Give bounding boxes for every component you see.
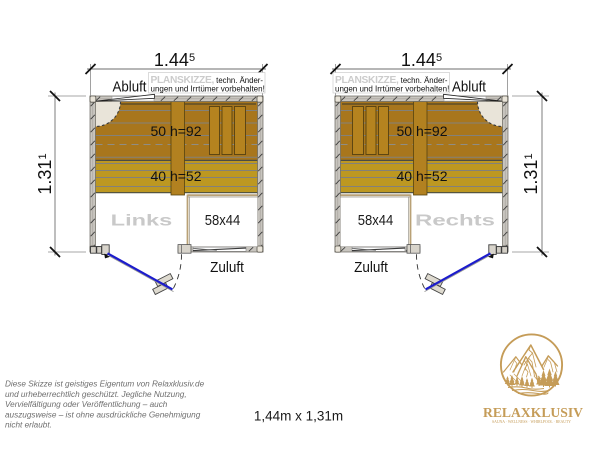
svg-text:SAUNA · WELLNESS · WHIRLPOOL ·: SAUNA · WELLNESS · WHIRLPOOL · BEAUTY <box>492 419 571 424</box>
svg-text:Abluft: Abluft <box>113 80 147 96</box>
svg-text:und urheberrechtlich geschützt: und urheberrechtlich geschützt. Jegliche… <box>5 390 187 399</box>
svg-text:RELAXKLUSIV: RELAXKLUSIV <box>483 405 583 420</box>
svg-text:50 h=92: 50 h=92 <box>151 123 202 139</box>
svg-text:Zuluft: Zuluft <box>354 260 388 276</box>
svg-text:1.311: 1.311 <box>35 153 55 194</box>
svg-text:Abluft: Abluft <box>452 80 486 96</box>
svg-text:Vervielfältigung oder Veröffen: Vervielfältigung oder Veröffentlichung –… <box>5 400 168 409</box>
svg-text:1.445: 1.445 <box>154 50 195 70</box>
svg-text:1.311: 1.311 <box>521 153 541 194</box>
svg-text:Links: Links <box>111 213 173 230</box>
svg-text:Diese Skizze ist geistiges Eig: Diese Skizze ist geistiges Eigentum von … <box>5 380 205 389</box>
svg-text:Rechts: Rechts <box>415 213 495 230</box>
svg-text:Zuluft: Zuluft <box>210 260 244 276</box>
svg-text:ungen und Irrtümer vorbehalten: ungen und Irrtümer vorbehalten! <box>151 84 265 93</box>
svg-text:58x44: 58x44 <box>205 212 241 229</box>
svg-text:ungen und Irrtümer vorbehalten: ungen und Irrtümer vorbehalten! <box>335 84 449 93</box>
svg-text:50 h=92: 50 h=92 <box>397 123 448 139</box>
svg-text:58x44: 58x44 <box>358 212 394 229</box>
svg-text:nicht erlaubt.: nicht erlaubt. <box>5 421 52 430</box>
svg-text:40 h=52: 40 h=52 <box>397 168 448 184</box>
svg-text:40 h=52: 40 h=52 <box>151 168 202 184</box>
svg-text:auszugsweise – ist ohne ausdrü: auszugsweise – ist ohne ausdrückliche Ge… <box>5 410 201 419</box>
svg-text:1.445: 1.445 <box>401 50 442 70</box>
svg-text:1,44m x 1,31m: 1,44m x 1,31m <box>254 409 343 424</box>
